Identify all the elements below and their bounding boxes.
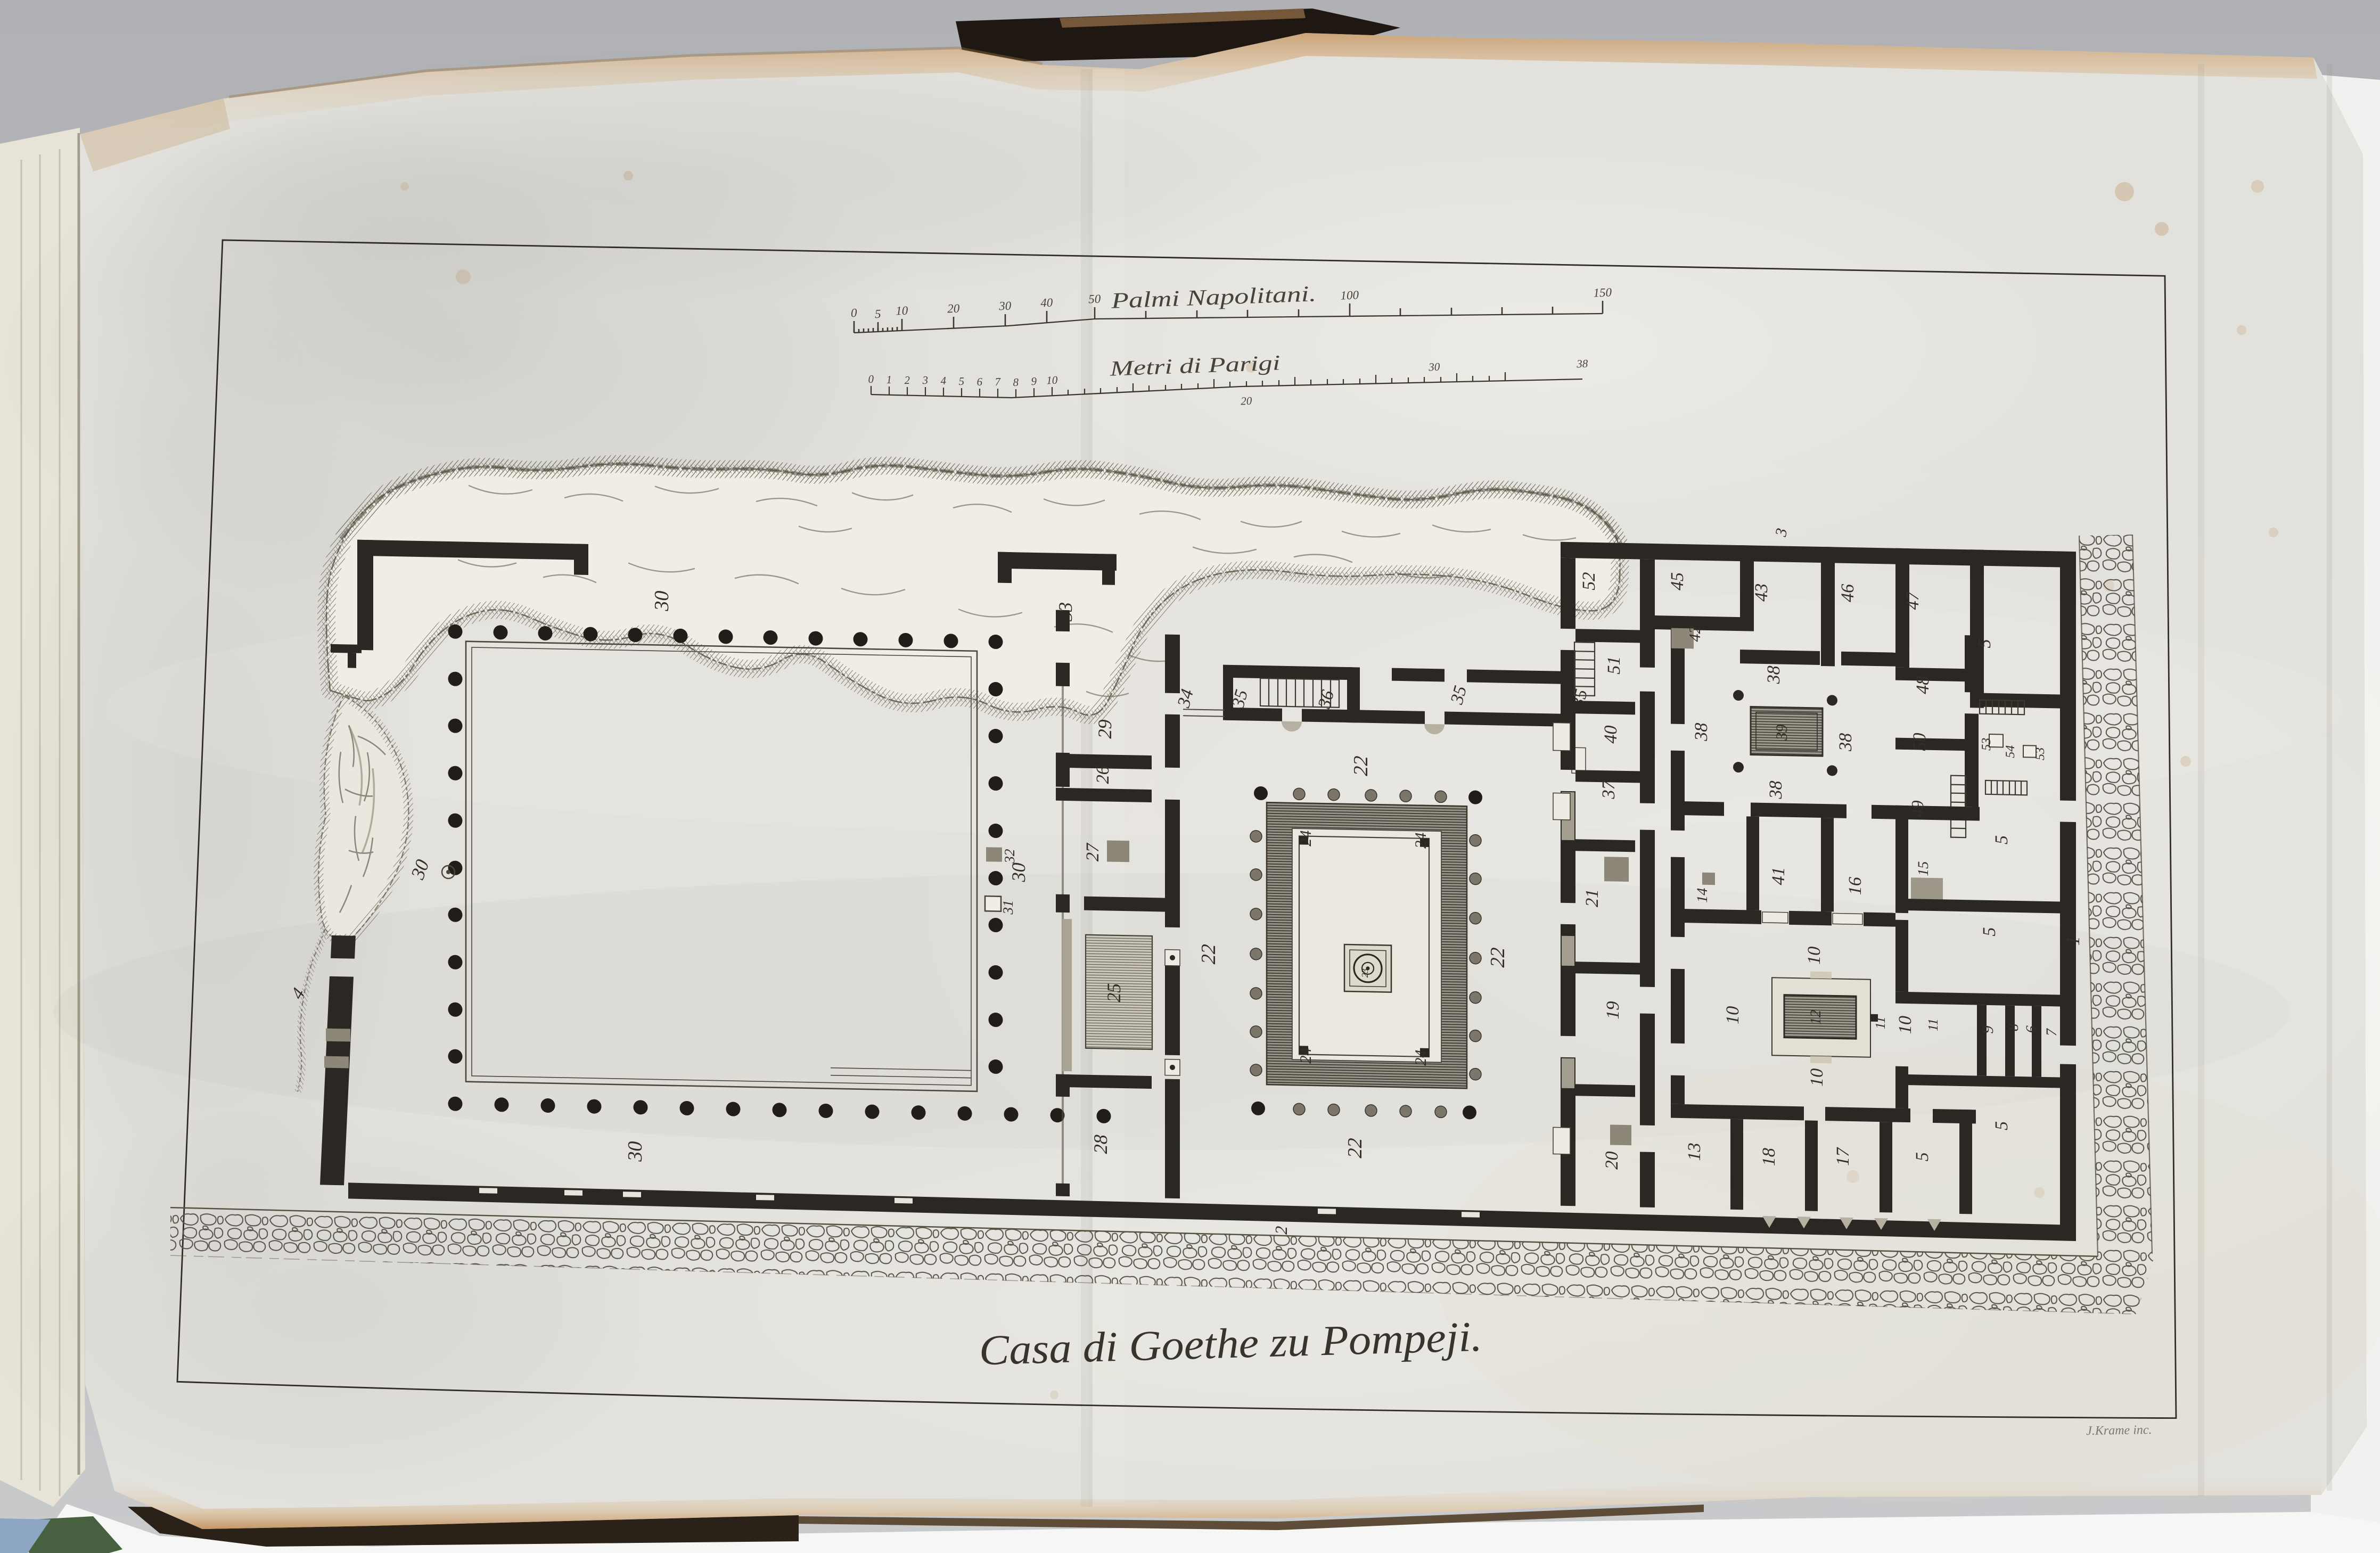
svg-text:48: 48 — [1913, 676, 1933, 694]
svg-text:30: 30 — [1008, 862, 1029, 883]
svg-text:49: 49 — [1908, 800, 1927, 818]
svg-text:11: 11 — [1873, 1016, 1888, 1030]
svg-text:5: 5 — [958, 375, 964, 388]
svg-text:39: 39 — [1773, 724, 1791, 741]
svg-text:24: 24 — [1297, 830, 1315, 847]
svg-text:23: 23 — [1360, 968, 1370, 977]
svg-text:6: 6 — [976, 375, 983, 388]
svg-text:5: 5 — [1913, 1152, 1932, 1162]
svg-text:5: 5 — [1980, 927, 1999, 936]
svg-text:13: 13 — [1685, 1143, 1704, 1161]
svg-text:37: 37 — [1599, 779, 1619, 800]
svg-text:26: 26 — [1093, 766, 1113, 784]
svg-text:8: 8 — [2005, 1024, 2022, 1032]
svg-text:10: 10 — [1895, 1016, 1915, 1034]
svg-text:150: 150 — [1593, 285, 1612, 299]
svg-text:21: 21 — [1582, 889, 1602, 907]
svg-text:15: 15 — [1915, 861, 1932, 876]
svg-text:5: 5 — [1975, 639, 1995, 648]
svg-text:51: 51 — [1604, 656, 1624, 675]
svg-text:20: 20 — [947, 302, 960, 316]
svg-text:100: 100 — [1340, 288, 1359, 302]
svg-text:22: 22 — [1487, 947, 1509, 968]
svg-text:42: 42 — [1686, 626, 1704, 642]
svg-text:9: 9 — [1979, 1025, 1997, 1034]
svg-text:5: 5 — [1992, 835, 2012, 845]
svg-text:10: 10 — [1723, 1006, 1743, 1024]
svg-text:20: 20 — [1241, 395, 1252, 408]
svg-text:3: 3 — [922, 374, 928, 387]
svg-text:18: 18 — [1759, 1148, 1779, 1166]
svg-text:41: 41 — [1769, 867, 1788, 885]
svg-text:40: 40 — [1601, 725, 1621, 744]
svg-text:24: 24 — [1297, 1047, 1315, 1064]
svg-text:38: 38 — [1836, 733, 1856, 752]
svg-text:27: 27 — [1083, 842, 1103, 862]
svg-text:53: 53 — [2033, 747, 2047, 760]
svg-text:12: 12 — [1808, 1010, 1824, 1025]
svg-text:1: 1 — [2062, 936, 2083, 946]
svg-text:2: 2 — [904, 374, 910, 387]
svg-text:20: 20 — [1602, 1151, 1622, 1170]
svg-text:4: 4 — [940, 374, 947, 387]
svg-text:45: 45 — [1668, 572, 1687, 591]
svg-text:1: 1 — [886, 373, 892, 386]
svg-text:6: 6 — [2023, 1025, 2040, 1033]
svg-text:29: 29 — [1094, 719, 1115, 739]
svg-text:9: 9 — [1031, 375, 1037, 388]
svg-text:19: 19 — [1603, 1001, 1623, 1020]
svg-text:10: 10 — [1046, 374, 1058, 387]
svg-text:28: 28 — [1090, 1135, 1111, 1154]
svg-text:43: 43 — [1752, 584, 1771, 602]
svg-text:5: 5 — [1992, 1121, 2012, 1131]
svg-text:40: 40 — [1040, 296, 1053, 310]
svg-text:30: 30 — [998, 299, 1012, 313]
svg-text:47: 47 — [1903, 590, 1923, 610]
svg-text:32: 32 — [1002, 849, 1017, 864]
svg-text:24: 24 — [1412, 1049, 1430, 1066]
svg-text:11: 11 — [1925, 1018, 1941, 1032]
svg-text:30: 30 — [651, 590, 673, 612]
svg-text:2: 2 — [1271, 1226, 1291, 1235]
svg-text:17: 17 — [1833, 1146, 1853, 1166]
svg-text:14: 14 — [1694, 888, 1711, 903]
svg-text:30: 30 — [624, 1141, 646, 1162]
svg-text:24: 24 — [1412, 832, 1430, 849]
svg-text:0: 0 — [868, 373, 874, 385]
svg-text:5: 5 — [875, 307, 881, 321]
svg-text:52: 52 — [1579, 572, 1599, 590]
svg-text:30: 30 — [1428, 360, 1440, 374]
svg-text:38: 38 — [1576, 357, 1588, 371]
svg-text:38: 38 — [1764, 665, 1784, 685]
svg-text:46: 46 — [1838, 584, 1858, 603]
svg-text:22: 22 — [1344, 1138, 1366, 1158]
svg-text:50: 50 — [1088, 292, 1101, 306]
svg-text:38: 38 — [1766, 780, 1786, 800]
svg-text:50: 50 — [1910, 733, 1930, 751]
svg-text:16: 16 — [1845, 877, 1865, 895]
svg-text:53: 53 — [1980, 738, 1993, 751]
svg-text:10: 10 — [896, 304, 908, 318]
svg-text:10: 10 — [1804, 946, 1824, 965]
svg-text:25: 25 — [1103, 983, 1125, 1003]
svg-text:22: 22 — [1350, 755, 1372, 776]
svg-text:0: 0 — [851, 306, 858, 319]
svg-text:10: 10 — [1807, 1068, 1827, 1087]
svg-text:J.Krame inc.: J.Krame inc. — [2086, 1423, 2152, 1438]
svg-text:8: 8 — [1013, 376, 1019, 389]
svg-text:31: 31 — [1000, 900, 1016, 915]
svg-text:54: 54 — [2004, 745, 2017, 758]
svg-text:7: 7 — [2043, 1028, 2060, 1037]
svg-text:38: 38 — [1692, 722, 1711, 742]
svg-text:22: 22 — [1197, 944, 1220, 965]
